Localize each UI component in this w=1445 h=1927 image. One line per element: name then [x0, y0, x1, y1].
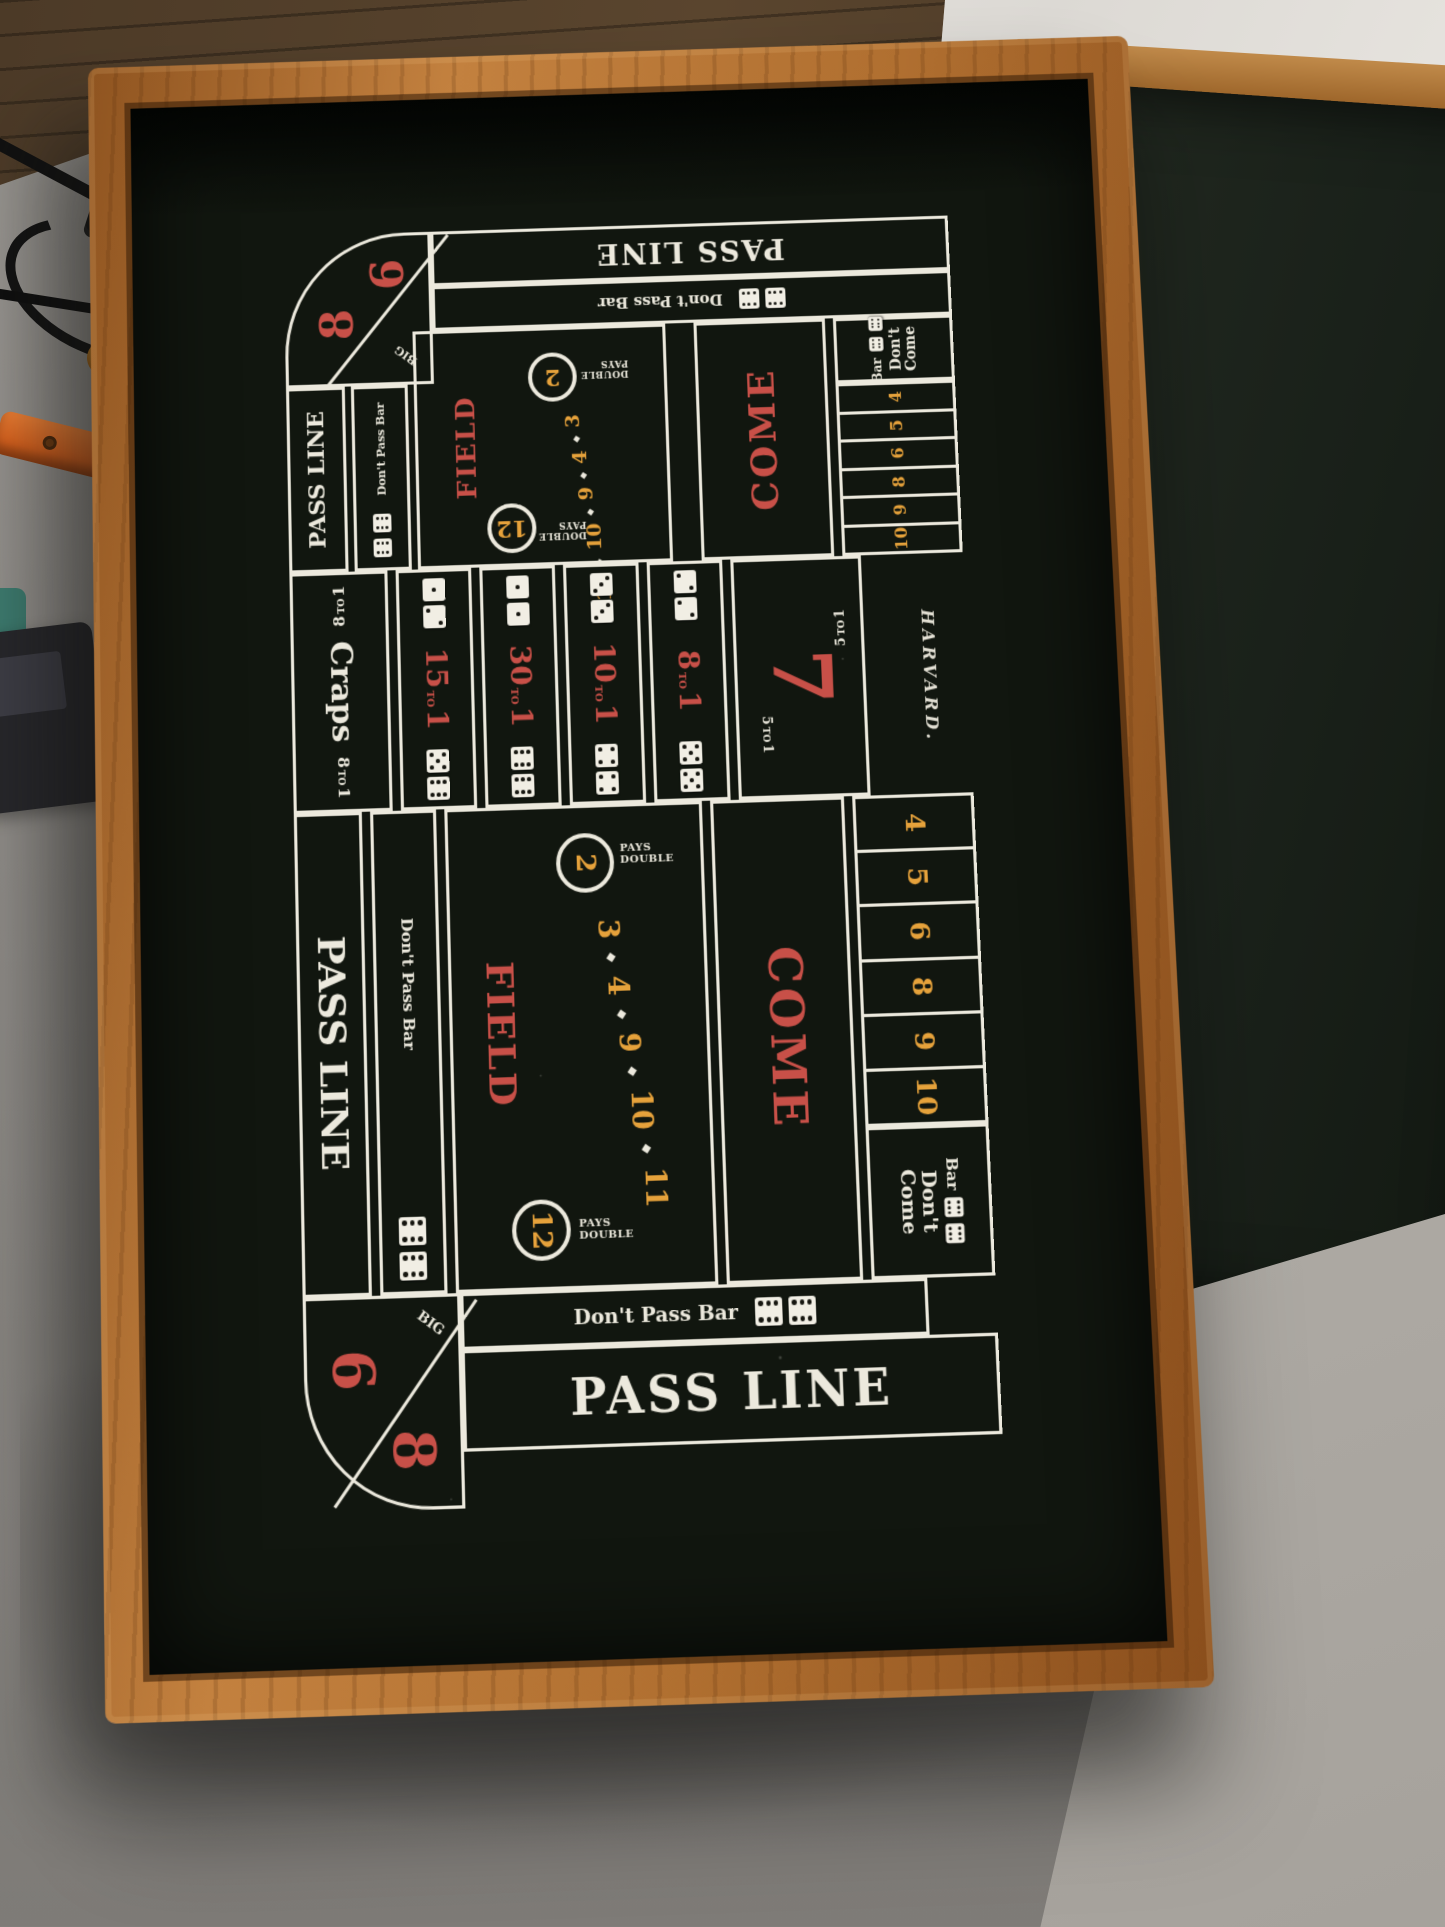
field-number: 4: [601, 975, 634, 996]
point-number: 5: [889, 419, 906, 431]
bar-dice: [944, 1197, 965, 1243]
field-number: 9: [612, 1032, 645, 1053]
diamond-separator: ◆: [571, 435, 582, 444]
diamond-separator: ◆: [604, 951, 620, 963]
prop-bet-10-to-1: 10TO1: [563, 562, 646, 805]
craps-felt: PASS LINE Don't Pass Bar 6 8 BIG PASS LI…: [130, 79, 1167, 1675]
field-label: FIELD: [480, 961, 521, 1109]
bottom-big-six-eight-corner: 6 8 BIG: [303, 1293, 466, 1514]
field-label: FIELD: [453, 395, 482, 500]
dont-pass-dice: [754, 1296, 816, 1327]
prop-odds: 10TO1: [589, 642, 620, 725]
prop-dice-bottom: [595, 744, 619, 795]
bottom-field: 2 PAYS DOUBLE 3◆4◆9◆10◆11 12 PAYS DOUBLE…: [444, 801, 718, 1293]
die-4: [595, 744, 618, 768]
die-1: [506, 575, 529, 599]
seven-label: 7: [759, 647, 841, 706]
die-6: [945, 1224, 965, 1244]
point-box-10: 10: [866, 1065, 985, 1124]
die-6: [869, 336, 884, 351]
prop-bet-15-to-1: 15TO1: [396, 568, 478, 811]
prop-dice-bottom: [679, 741, 703, 792]
point-box-6: 6: [860, 901, 978, 959]
die-1: [507, 602, 530, 626]
field-number: 9: [575, 487, 598, 501]
bar-label: Bar: [870, 358, 885, 383]
point-number: 10: [893, 527, 910, 551]
proposition-columns: 15TO130TO110TO18TO1: [396, 560, 739, 811]
die-6: [427, 776, 450, 800]
bottom-pass-line-column: PASS LINE: [294, 812, 372, 1298]
die-6: [373, 538, 392, 557]
pass-line-label: PASS LINE: [569, 1361, 894, 1422]
die-6: [739, 288, 760, 309]
craps-odds: 8TO1: [334, 757, 350, 799]
point-box-6: 6: [841, 436, 956, 468]
point-number: 4: [900, 813, 928, 833]
pays-double-label: PAYS DOUBLE: [579, 1216, 634, 1242]
prop-dice-top: [506, 575, 530, 626]
die-3: [590, 573, 613, 597]
pass-line-label: PASS LINE: [305, 411, 330, 549]
big-label: BIG: [414, 1309, 446, 1339]
point-box-4: 4: [839, 383, 954, 412]
bottom-come-box: COME: [710, 796, 863, 1284]
point-number: 9: [892, 504, 909, 516]
bar-dice: [868, 316, 884, 351]
prop-bet-8-to-1: 8TO1: [647, 560, 731, 803]
die-6: [868, 316, 883, 331]
bar-label: Bar: [942, 1157, 962, 1191]
dont-pass-bar-label: Don't Pass Bar: [598, 290, 723, 312]
dont-pass-bar-label: Don't Pass Bar: [398, 917, 417, 1050]
die-6: [399, 1217, 427, 1246]
diamond-separator: ◆: [584, 508, 595, 517]
die-4: [596, 771, 619, 795]
craps-label: Craps: [324, 641, 357, 743]
diamond-separator: ◆: [626, 1065, 642, 1078]
point-box-9: 9: [864, 1010, 983, 1069]
field-twelve: 12: [527, 1210, 555, 1250]
point-number: 4: [888, 391, 905, 403]
field-twelve-circle: 12: [487, 503, 537, 554]
top-point-numbers: 4568910: [835, 380, 962, 556]
point-number: 8: [907, 976, 935, 996]
bottom-dont-come-box: Bar Don't Come: [865, 1123, 995, 1279]
gadget-screen: [0, 651, 67, 717]
top-pass-line-column: PASS LINE: [286, 387, 349, 574]
craps-board-case: PASS LINE Don't Pass Bar 6 8 BIG PASS LI…: [88, 36, 1215, 1724]
seven-odds: 5TO1: [833, 609, 848, 646]
die-6: [754, 1297, 782, 1326]
top-come-box: COME: [693, 319, 834, 561]
prop-dice-top: [673, 570, 697, 621]
die-2: [423, 605, 446, 629]
prop-dice-top: [590, 573, 614, 624]
field-twelve-circle: 12: [511, 1199, 571, 1262]
field-number: 3: [591, 918, 624, 939]
field-number-run: 3◆4◆9◆10◆11: [590, 916, 675, 1211]
prop-dice-top: [422, 578, 446, 629]
point-box-5: 5: [840, 408, 955, 440]
die-2: [674, 597, 697, 621]
point-box-5: 5: [857, 846, 975, 904]
die-6: [511, 774, 534, 798]
point-box-10: 10: [844, 521, 959, 553]
field-number: 3: [562, 414, 585, 428]
die-6: [765, 287, 786, 308]
top-dont-pass-column: Don't Pass Bar: [351, 385, 412, 572]
die-6: [399, 1251, 427, 1280]
field-number: 10: [624, 1089, 658, 1131]
pays-double-label: DOUBLE PAYS: [580, 356, 629, 378]
field-two: 2: [571, 853, 598, 873]
top-field: 2 DOUBLE PAYS 3◆4◆9◆10◆11 12 DOUBLE PAYS…: [412, 324, 673, 570]
point-box-9: 9: [843, 492, 958, 524]
die-6: [788, 1296, 816, 1325]
seven-box: 5TO1 7 5TO1: [730, 555, 870, 799]
field-twelve: 12: [496, 516, 528, 540]
pass-line-label: PASS LINE: [312, 935, 354, 1171]
big-eight: 8: [316, 309, 361, 341]
prop-bet-30-to-1: 30TO1: [479, 565, 561, 808]
diamond-separator: ◆: [615, 1008, 631, 1021]
bottom-point-numbers: 4568910: [852, 792, 988, 1127]
big-six: 6: [366, 258, 411, 290]
prop-odds: 15TO1: [421, 647, 452, 730]
point-number: 6: [905, 921, 933, 941]
prop-odds: 30TO1: [505, 644, 536, 727]
pays-double-label: PAYS DOUBLE: [620, 841, 675, 866]
corner-divider-line: [334, 1299, 478, 1509]
dont-pass-dice: [739, 287, 786, 309]
die-6: [944, 1197, 964, 1217]
field-number: 4: [568, 450, 591, 464]
come-label: COME: [743, 367, 785, 511]
prop-dice-bottom: [426, 749, 450, 800]
point-box-8: 8: [862, 955, 980, 1014]
point-number: 5: [903, 867, 931, 887]
die-6: [373, 513, 392, 532]
bottom-pass-line-band: PASS LINE: [462, 1333, 1003, 1452]
die-5: [680, 768, 703, 792]
prop-dice-bottom: [511, 746, 535, 797]
come-label: COME: [760, 945, 813, 1131]
big-six: 6: [325, 1349, 383, 1392]
dont-pass-dice: [373, 513, 392, 557]
point-box-4: 4: [855, 795, 973, 850]
die-6: [511, 746, 534, 770]
top-dont-come-box: Bar Don't Come: [833, 315, 955, 384]
dont-pass-bar-label: Don't Pass Bar: [573, 1300, 738, 1330]
top-big-six-eight-corner: 6 8 BIG: [283, 232, 434, 389]
die-5: [679, 741, 702, 765]
big-eight: 8: [385, 1428, 443, 1472]
dont-pass-bar-label: Don't Pass Bar: [374, 403, 387, 496]
craps-box: 8TO1 Craps 8TO1: [289, 570, 392, 814]
field-number: 11: [638, 1166, 672, 1208]
die-2: [673, 570, 696, 594]
seven-odds: 5TO1: [759, 716, 774, 753]
prop-odds: 8TO1: [673, 649, 704, 712]
point-number: 10: [911, 1076, 940, 1116]
field-two-circle: 2: [527, 352, 577, 402]
brand-label: HARVARD.: [918, 609, 940, 743]
diamond-separator: ◆: [640, 1142, 656, 1155]
point-box-8: 8: [842, 464, 957, 496]
pays-double-label: DOUBLE PAYS: [538, 518, 587, 540]
point-number: 9: [909, 1031, 937, 1051]
dont-pass-dice: [399, 1217, 428, 1281]
die-1: [422, 578, 445, 602]
diamond-separator: ◆: [578, 471, 589, 480]
point-number: 8: [891, 476, 908, 488]
case-inner-wall-shadow: [130, 79, 1093, 219]
craps-odds: 8TO1: [331, 586, 347, 627]
pass-line-label: PASS LINE: [595, 234, 785, 268]
field-two-circle: 2: [555, 832, 615, 893]
die-3: [591, 600, 614, 624]
field-two: 2: [544, 366, 560, 389]
point-number: 6: [890, 447, 907, 459]
die-5: [426, 749, 449, 773]
craps-layout: PASS LINE Don't Pass Bar 6 8 BIG PASS LI…: [283, 216, 1004, 1498]
bottom-dont-pass-column: Don't Pass Bar: [370, 810, 448, 1296]
